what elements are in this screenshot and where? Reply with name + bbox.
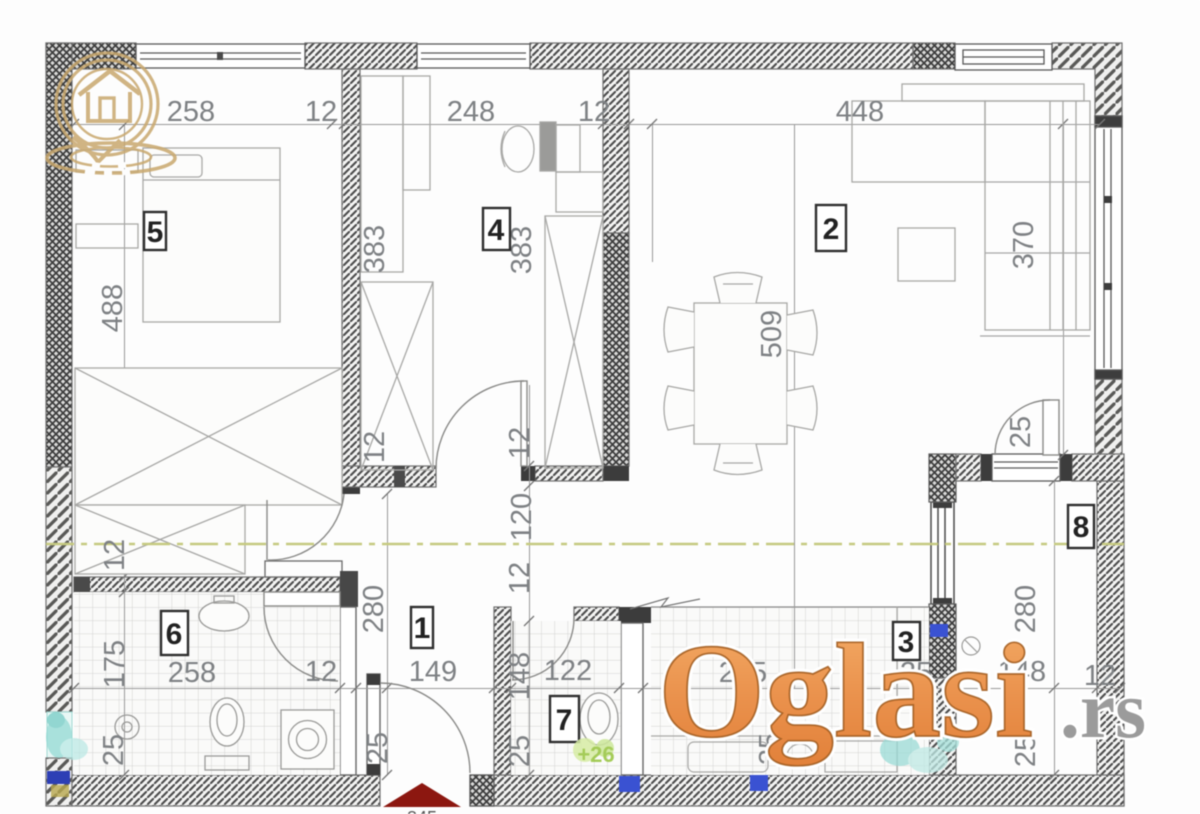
svg-text:25: 25	[98, 734, 130, 766]
svg-text:383: 383	[359, 225, 391, 273]
svg-text:12: 12	[359, 431, 391, 463]
svg-text:12: 12	[99, 539, 131, 571]
svg-text:488: 488	[97, 284, 129, 332]
svg-text:7: 7	[556, 704, 573, 737]
svg-text:509: 509	[756, 310, 788, 358]
svg-text:4: 4	[488, 214, 505, 247]
svg-text:149: 149	[409, 656, 457, 688]
svg-text:258: 258	[168, 657, 216, 689]
svg-text:12: 12	[305, 656, 337, 688]
svg-text:12: 12	[504, 427, 536, 459]
svg-text:248: 248	[447, 96, 495, 128]
svg-text:Oglasi: Oglasi	[658, 617, 1033, 766]
svg-text:12: 12	[504, 562, 536, 594]
svg-text:120: 120	[506, 493, 538, 541]
svg-text:175: 175	[99, 640, 131, 688]
svg-text:+26: +26	[577, 742, 614, 767]
svg-text:148: 148	[504, 652, 536, 700]
svg-text:25: 25	[504, 735, 536, 767]
svg-text:12: 12	[305, 96, 337, 128]
svg-text:122: 122	[544, 655, 592, 687]
svg-text:2: 2	[823, 213, 840, 246]
svg-text:.rs: .rs	[1060, 664, 1146, 755]
svg-text:6: 6	[166, 618, 183, 651]
svg-text:8: 8	[1073, 511, 1090, 544]
svg-text:1: 1	[414, 612, 431, 645]
svg-text:370: 370	[1008, 221, 1040, 269]
svg-text:5: 5	[147, 216, 164, 249]
svg-text:448: 448	[836, 96, 884, 128]
svg-text:845: 845	[407, 808, 437, 814]
svg-text:25: 25	[1005, 416, 1037, 448]
svg-text:12: 12	[578, 96, 610, 128]
svg-text:25: 25	[362, 732, 394, 764]
svg-text:258: 258	[167, 96, 215, 128]
svg-text:280: 280	[358, 585, 390, 633]
